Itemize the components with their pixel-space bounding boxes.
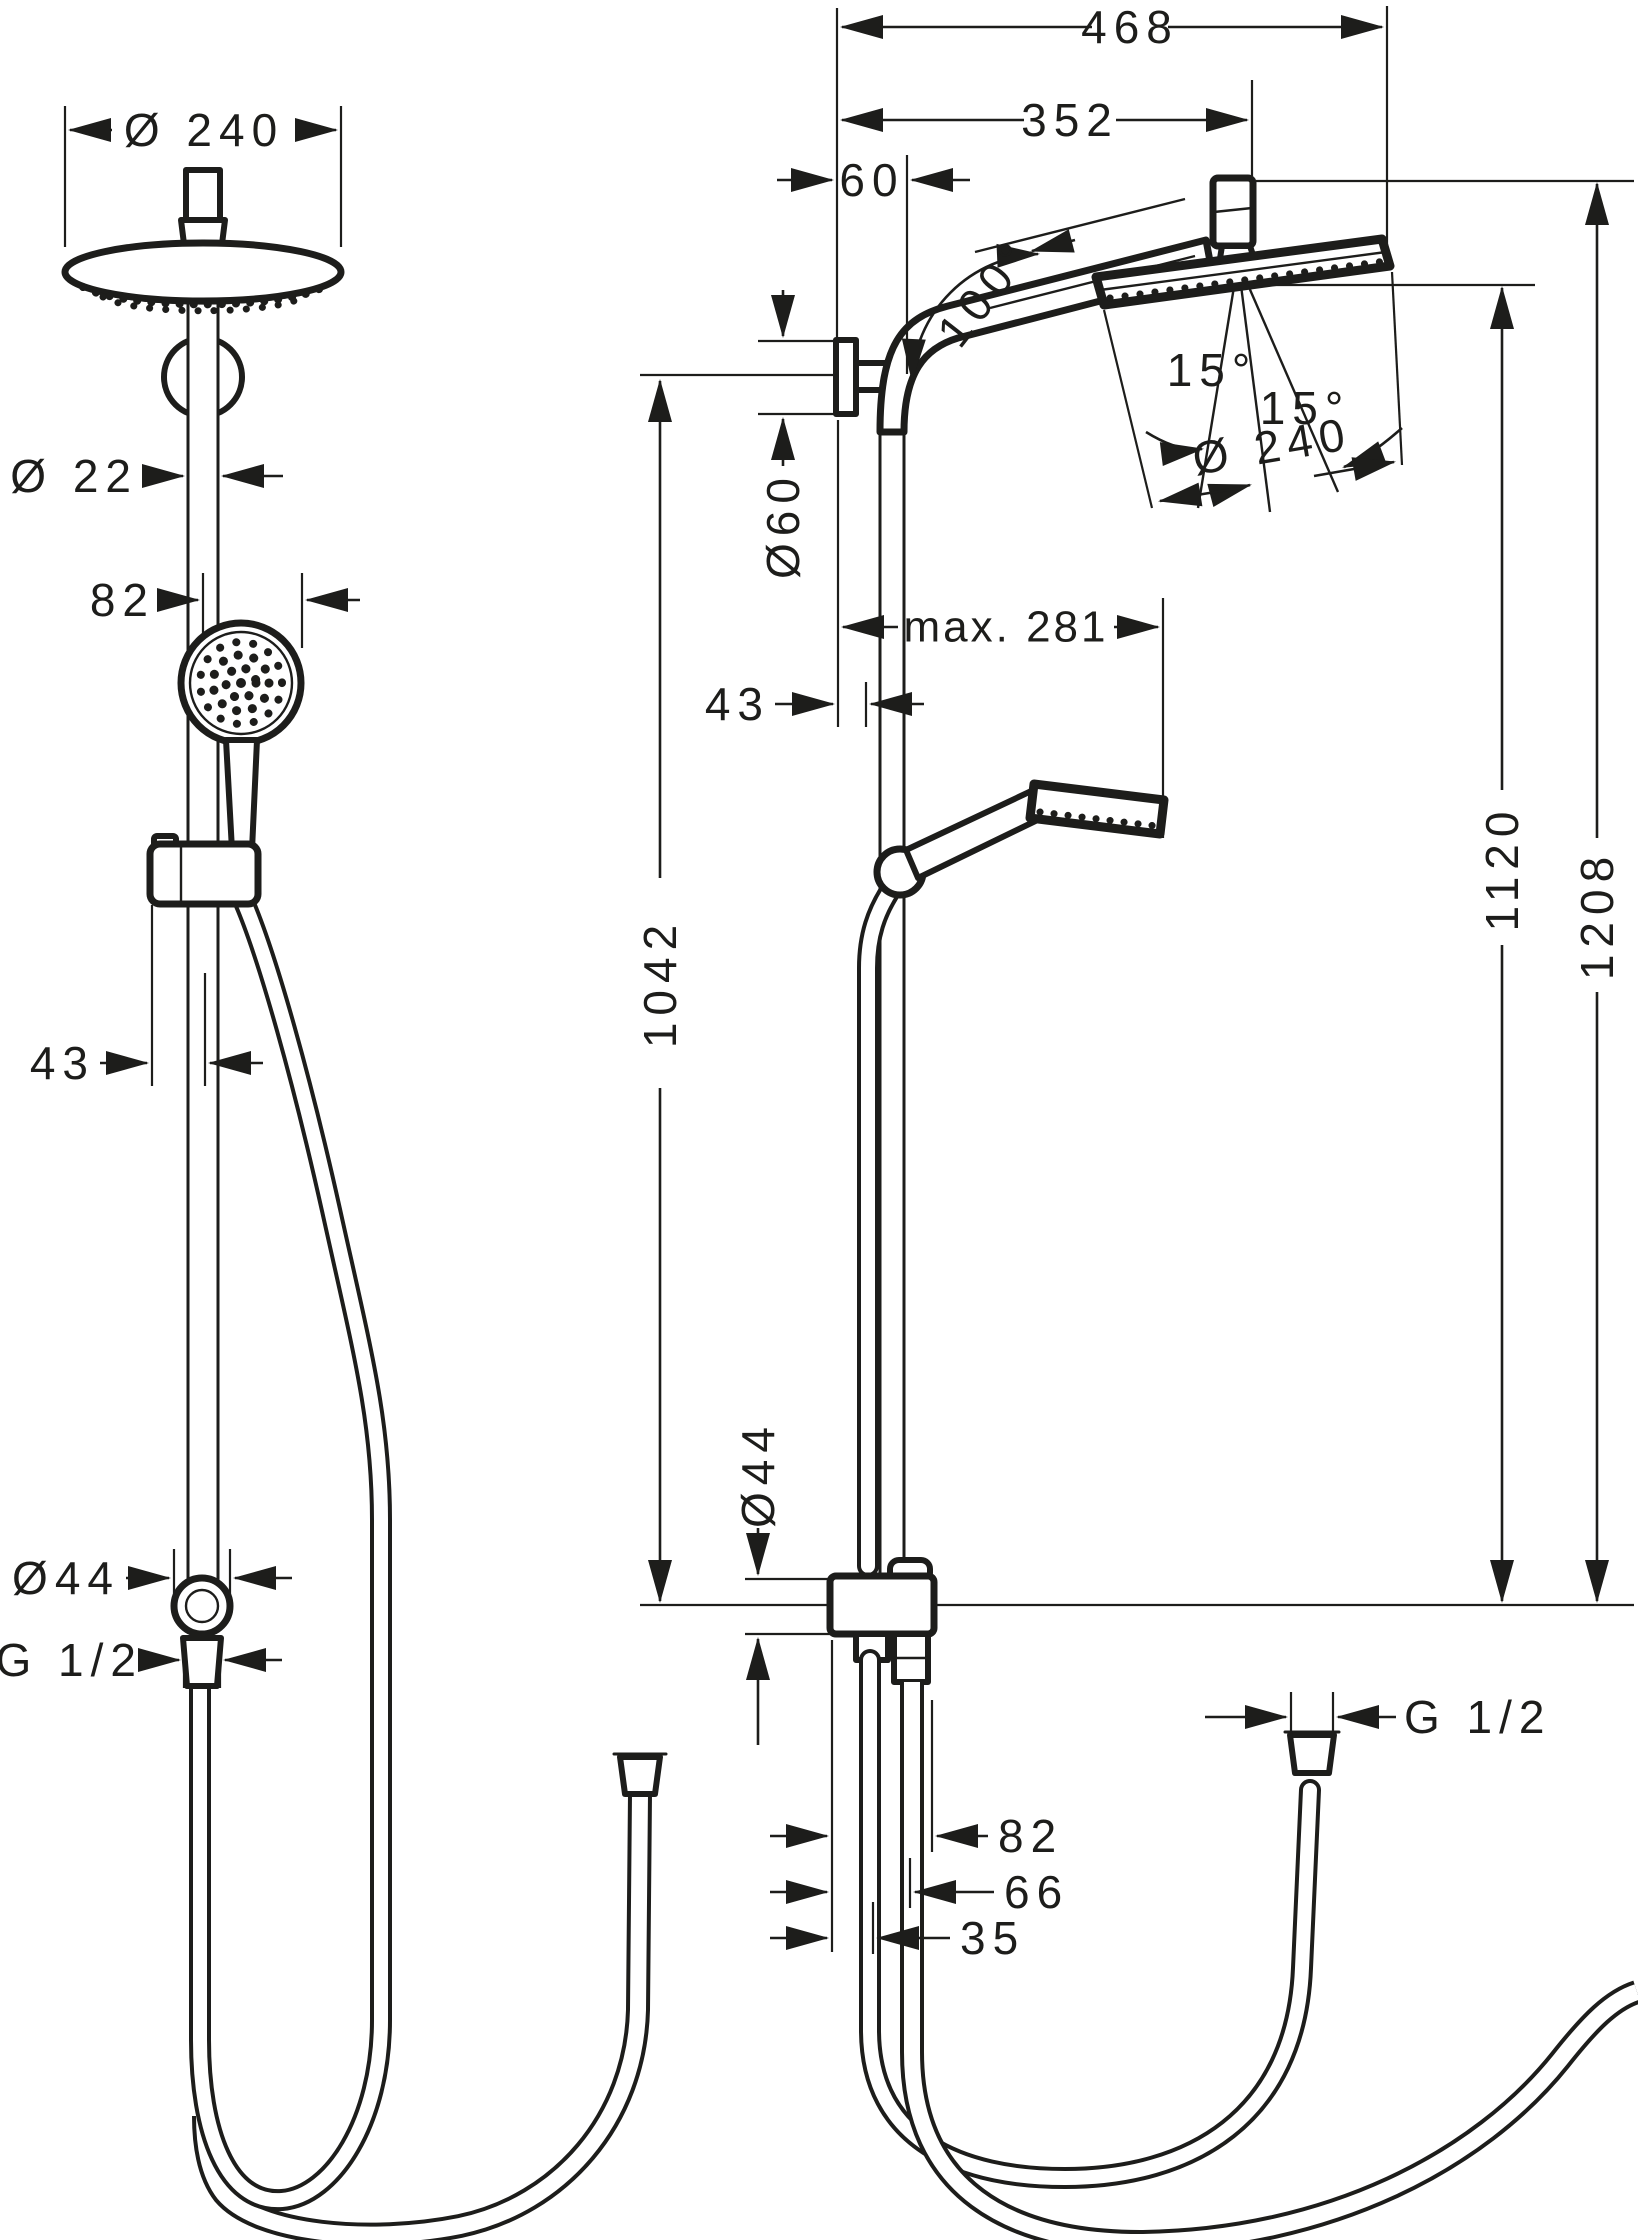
dim-label-front-82: 82 <box>90 574 155 626</box>
junction-block-side <box>830 1560 934 1682</box>
shower-rail-side <box>880 415 904 1580</box>
g12-thread-front <box>183 1638 221 1686</box>
dim-label-side-35: 35 <box>960 1912 1025 1964</box>
dim-side-diameter-44: Ø44 <box>732 1420 830 1745</box>
dim-label-side-15-left: 15° <box>1167 344 1258 396</box>
dim-label-side-dia-60: Ø60 <box>757 471 809 579</box>
technical-drawing-page: Ø 240 Ø 22 82 43 Ø44 <box>0 0 1638 2240</box>
dim-label-side-dia-44: Ø44 <box>732 1420 784 1528</box>
dim-label-side-60: 60 <box>839 154 904 206</box>
side-view <box>830 178 1637 2240</box>
overhead-shower-front <box>65 170 341 311</box>
bottom-connector-front <box>174 1578 230 1686</box>
dim-side-diameter-60: Ø60 <box>757 290 846 579</box>
dim-label-side-1042: 1042 <box>634 918 686 1048</box>
dim-label-side-468: 468 <box>1081 1 1179 53</box>
dim-label-side-43: 43 <box>705 678 770 730</box>
dim-front-43: 43 <box>30 905 263 1089</box>
hand-shower-handle-front <box>226 740 257 850</box>
dim-label-side-g12: G 1/2 <box>1404 1691 1552 1743</box>
hoses-front <box>200 902 666 2235</box>
slider-bracket-front <box>150 836 258 904</box>
dim-front-diameter-44: Ø44 <box>12 1549 292 1607</box>
dim-label-side-1208: 1208 <box>1571 850 1623 980</box>
dim-front-g12: G 1/2 <box>0 1634 282 1688</box>
dim-side-1042: 1042 <box>634 381 686 1601</box>
dim-side-15deg-left: 15° <box>1167 344 1258 396</box>
dim-label-side-66: 66 <box>1004 1866 1069 1918</box>
supply-hose-free-end-side <box>1285 1732 1339 1773</box>
shower-rail-front <box>188 300 218 1585</box>
dim-label-front-g12: G 1/2 <box>0 1634 143 1686</box>
dim-label-front-dia-240: Ø 240 <box>124 104 284 156</box>
dim-side-1120: 1120 <box>1476 288 1528 1601</box>
ceiling-connector-stem <box>186 170 220 222</box>
dim-label-front-dia-22: Ø 22 <box>10 450 138 502</box>
dim-label-side-352: 352 <box>1021 94 1119 146</box>
front-view <box>65 170 666 2235</box>
dim-side-35: 35 <box>770 1902 1025 1964</box>
dim-label-side-1120: 1120 <box>1476 805 1528 932</box>
dim-label-side-max-281: max. 281 <box>904 603 1109 652</box>
dim-label-front-dia-44: Ø44 <box>12 1552 120 1604</box>
hand-shower-side <box>877 784 1164 895</box>
dim-side-1208: 1208 <box>1571 184 1623 1601</box>
supply-hose-free-end-front <box>614 1754 666 1794</box>
dim-label-front-43: 43 <box>30 1037 95 1089</box>
dim-front-diameter-22: Ø 22 <box>10 450 283 502</box>
dim-side-g12: G 1/2 <box>1205 1691 1552 1743</box>
dim-label-side-82: 82 <box>998 1810 1063 1862</box>
shower-system-dimension-drawing: Ø 240 Ø 22 82 43 Ø44 <box>0 0 1638 2240</box>
